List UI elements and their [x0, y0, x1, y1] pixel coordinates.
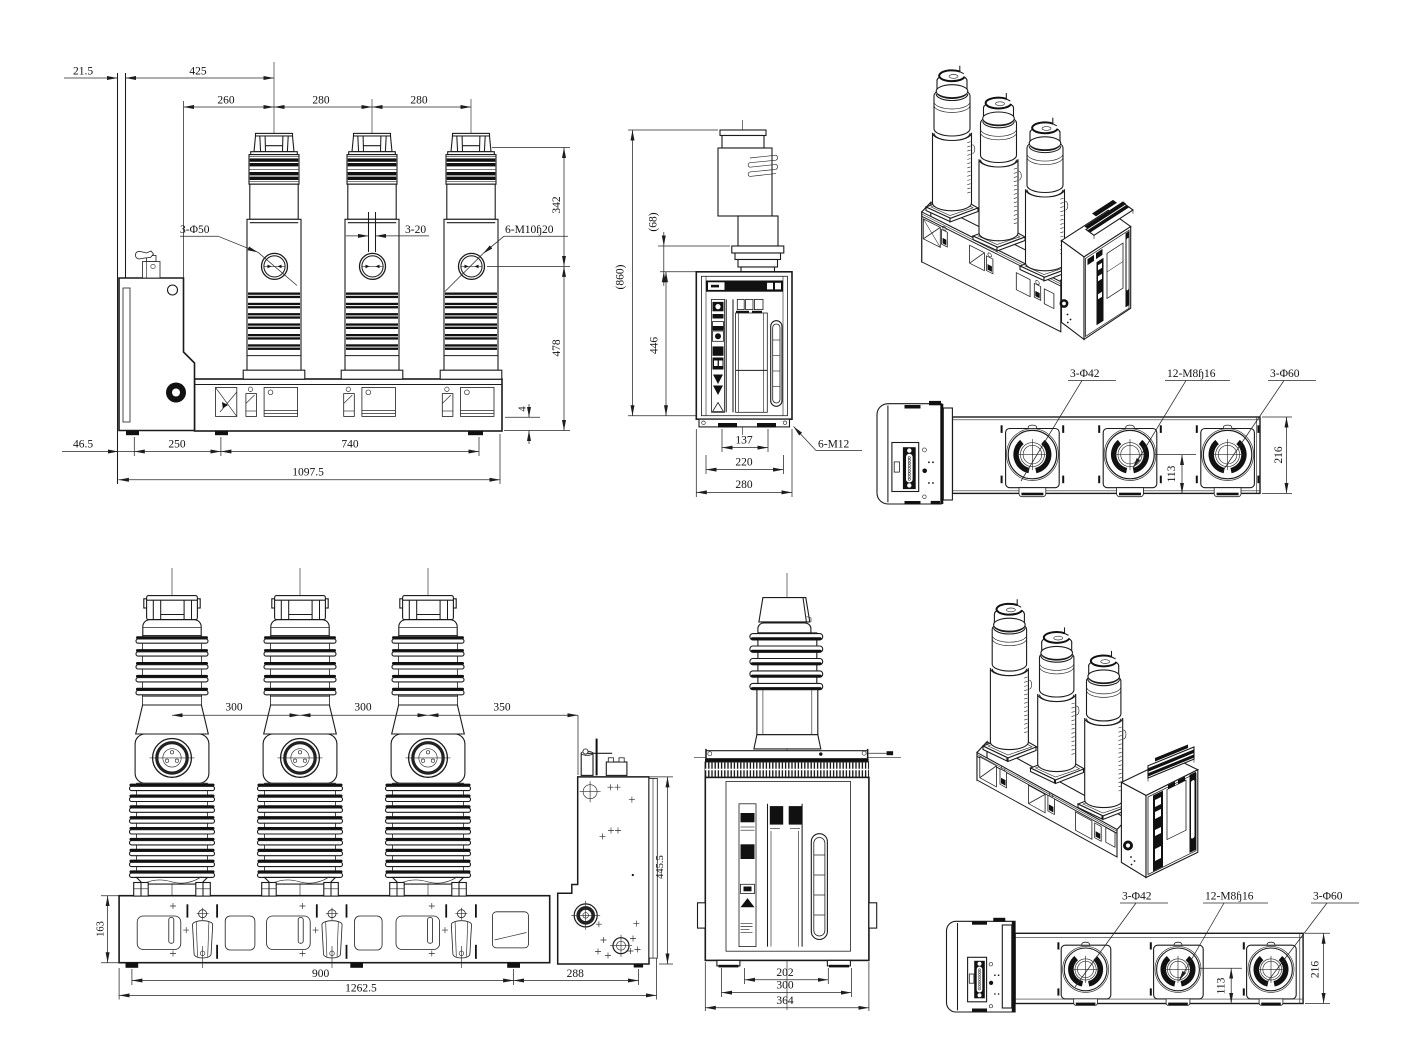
svg-text:6-M10ɧ20: 6-M10ɧ20 [505, 224, 554, 236]
svg-text:3-20: 3-20 [405, 224, 426, 236]
svg-text:216: 216 [1273, 446, 1285, 464]
svg-text:280: 280 [312, 95, 330, 107]
svg-text:12-M8ɧ16: 12-M8ɧ16 [1167, 368, 1216, 380]
svg-text:12-M8ɧ16: 12-M8ɧ16 [1205, 891, 1254, 903]
svg-text:260: 260 [217, 95, 235, 107]
svg-text:113: 113 [1166, 465, 1178, 482]
svg-text:46.5: 46.5 [73, 439, 93, 451]
svg-text:1262.5: 1262.5 [345, 983, 377, 995]
svg-text:350: 350 [493, 702, 511, 714]
svg-text:445.5: 445.5 [655, 855, 666, 879]
svg-text:364: 364 [776, 995, 794, 1007]
svg-text:202: 202 [776, 967, 794, 979]
svg-text:137: 137 [735, 435, 753, 447]
svg-text:4: 4 [518, 406, 529, 412]
svg-text:(68): (68) [648, 212, 660, 231]
svg-text:220: 220 [735, 457, 753, 469]
svg-text:21.5: 21.5 [73, 66, 93, 78]
svg-text:3-Φ50: 3-Φ50 [180, 224, 210, 236]
svg-text:288: 288 [567, 968, 585, 980]
svg-text:280: 280 [735, 479, 753, 491]
svg-text:342: 342 [551, 196, 563, 214]
svg-text:446: 446 [649, 337, 661, 355]
svg-text:113: 113 [1216, 977, 1228, 994]
svg-text:216: 216 [1310, 961, 1322, 979]
svg-text:3-Φ42: 3-Φ42 [1122, 891, 1152, 903]
svg-text:478: 478 [551, 339, 563, 357]
svg-text:740: 740 [341, 439, 359, 451]
svg-text:300: 300 [225, 702, 243, 714]
svg-text:280: 280 [410, 95, 428, 107]
svg-text:3-Φ60: 3-Φ60 [1313, 891, 1343, 903]
svg-text:3-Φ60: 3-Φ60 [1270, 368, 1300, 380]
svg-text:(860): (860) [615, 264, 627, 289]
svg-text:300: 300 [776, 980, 794, 992]
svg-text:425: 425 [189, 66, 207, 78]
svg-text:250: 250 [168, 439, 186, 451]
svg-text:300: 300 [354, 702, 372, 714]
svg-text:900: 900 [312, 968, 330, 980]
svg-text:1097.5: 1097.5 [292, 467, 324, 479]
svg-text:163: 163 [95, 921, 106, 937]
svg-text:3-Φ42: 3-Φ42 [1070, 368, 1100, 380]
svg-text:6-M12: 6-M12 [818, 439, 850, 451]
